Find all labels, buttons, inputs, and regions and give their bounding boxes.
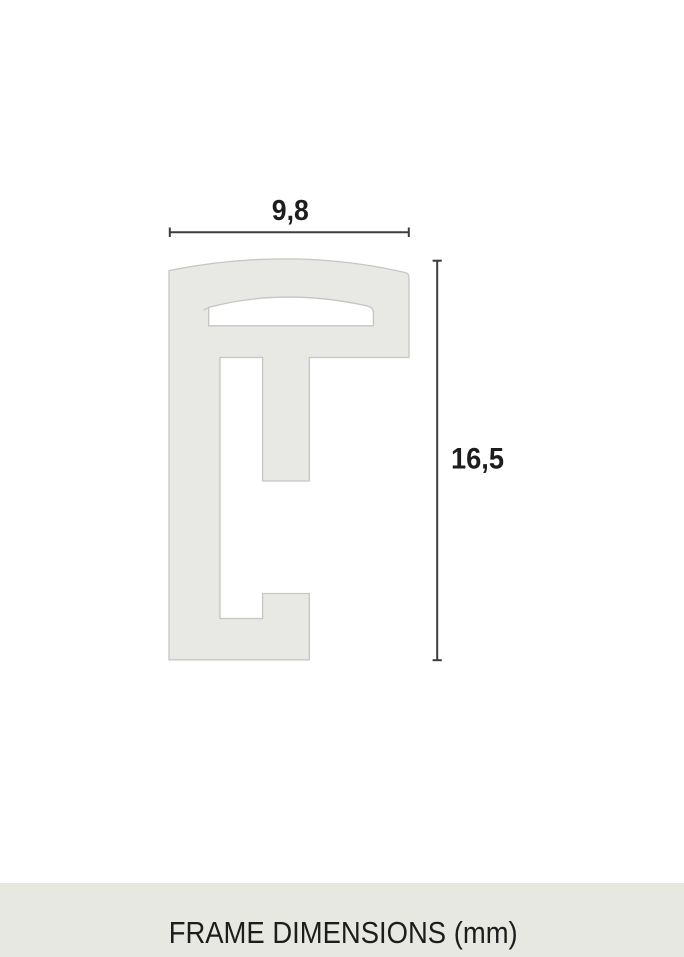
svg-text:16,5: 16,5: [451, 443, 504, 476]
svg-text:9,8: 9,8: [272, 195, 309, 227]
svg-text:FRAME DIMENSIONS (mm): FRAME DIMENSIONS (mm): [169, 915, 518, 950]
